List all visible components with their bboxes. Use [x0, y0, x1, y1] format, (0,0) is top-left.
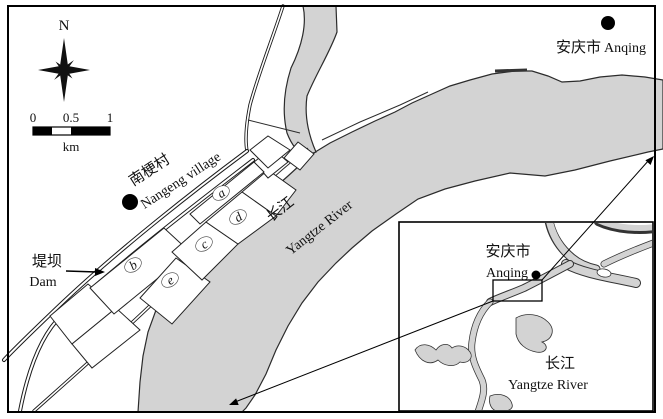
tributary-shape: [284, 6, 337, 156]
inset-city-dot: [532, 271, 541, 280]
compass-icon: N: [38, 18, 90, 102]
north-label: N: [59, 18, 70, 34]
dam-label-en: Dam: [29, 275, 56, 290]
anqing-city-label-en: Anqing: [604, 41, 646, 56]
village-dot: [122, 194, 138, 210]
scale-bar: 0 0.5 1 km: [30, 110, 114, 154]
map-figure: a b c d e N 0 0.5 1 km 安庆市 Anqing 南梗村 Na…: [0, 0, 663, 419]
scale-tick-0: 0: [30, 110, 37, 125]
inset-city-label-zh: 安庆市: [485, 243, 530, 260]
top-road: [246, 6, 283, 151]
scale-unit: km: [63, 139, 80, 154]
inset-river-label-en: Yangtze River: [508, 378, 588, 393]
bank-mark: [495, 70, 527, 71]
scale-tick-1: 1: [107, 110, 114, 125]
dam-label-zh: 堤坝: [32, 253, 62, 270]
scale-tick-05: 0.5: [63, 110, 79, 125]
anqing-city-dot: [601, 16, 615, 30]
inset-city-label-en: Anqing: [486, 266, 528, 281]
anqing-city-label-zh: 安庆市: [556, 39, 601, 56]
inset-river-label-zh: 长江: [545, 355, 575, 372]
map-canvas: a b c d e N 0 0.5 1 km 安庆市 Anqing 南梗村 Na…: [0, 0, 663, 419]
